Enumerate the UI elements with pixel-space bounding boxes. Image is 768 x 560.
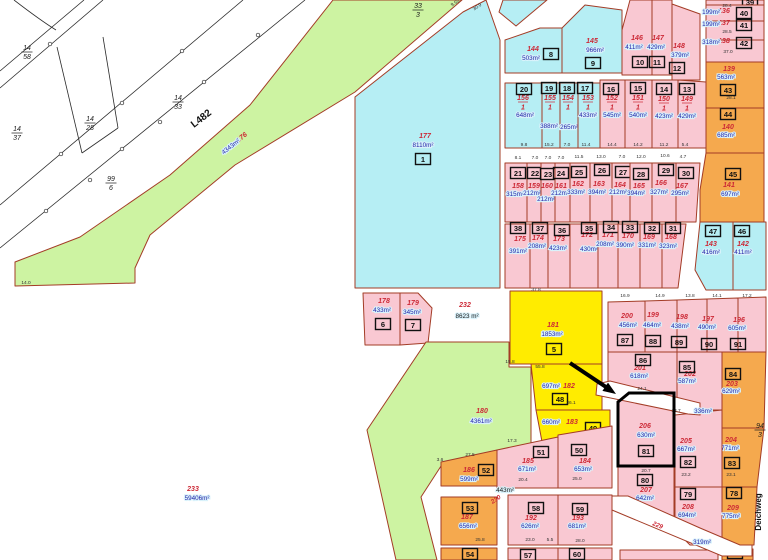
- svg-text:28.1: 28.1: [726, 95, 736, 101]
- svg-text:151: 151: [632, 95, 644, 102]
- svg-text:33: 33: [626, 223, 634, 232]
- svg-text:6: 6: [381, 320, 385, 329]
- svg-text:34: 34: [607, 223, 616, 232]
- parcel-fraction-14-58: 1458: [22, 45, 33, 61]
- parcel-152: 1521545m²16: [600, 80, 625, 148]
- parcel-209: 209775m²78: [722, 487, 757, 545]
- parcel-136: 136199m²40: [702, 5, 764, 21]
- svg-text:15.8: 15.8: [505, 359, 515, 365]
- svg-text:7.0: 7.0: [532, 155, 539, 161]
- svg-text:653m²: 653m²: [574, 466, 592, 473]
- svg-text:13: 13: [683, 85, 691, 94]
- svg-text:13.0: 13.0: [596, 154, 606, 160]
- svg-text:28.4: 28.4: [722, 3, 732, 9]
- svg-text:33: 33: [174, 104, 182, 111]
- svg-text:16: 16: [607, 85, 615, 94]
- svg-text:25: 25: [575, 168, 583, 177]
- parcel-169: 169331m²32: [638, 223, 662, 289]
- svg-text:192: 192: [525, 515, 537, 522]
- survey-point-icon: [256, 33, 260, 37]
- svg-text:456m²: 456m²: [619, 322, 637, 329]
- boundary-line: [0, 0, 84, 71]
- svg-text:411m²: 411m²: [734, 249, 751, 256]
- svg-text:35: 35: [585, 224, 593, 233]
- parcel-165: 165394m²28: [627, 163, 652, 222]
- svg-text:5.4: 5.4: [682, 142, 689, 148]
- svg-text:206: 206: [638, 423, 651, 430]
- svg-text:14.2: 14.2: [633, 142, 643, 148]
- survey-point-icon: [88, 178, 92, 182]
- svg-text:30: 30: [682, 169, 690, 178]
- svg-text:8.1: 8.1: [515, 155, 522, 161]
- svg-text:158: 158: [512, 183, 524, 190]
- parcel-187: 187656m²53: [441, 497, 497, 545]
- svg-text:379m²: 379m²: [671, 52, 689, 59]
- svg-text:80: 80: [641, 476, 649, 485]
- svg-text:3.6: 3.6: [437, 457, 444, 463]
- parcel-171: 171208m²34: [596, 222, 618, 289]
- svg-text:1: 1: [421, 155, 425, 164]
- svg-text:7.0: 7.0: [545, 155, 552, 161]
- svg-text:697m²: 697m²: [721, 191, 739, 198]
- parcel-139: 139563m²43: [706, 62, 764, 108]
- svg-text:23.1: 23.1: [726, 472, 736, 478]
- svg-text:233: 233: [186, 486, 199, 493]
- svg-text:143: 143: [705, 241, 717, 248]
- svg-text:429m²: 429m²: [647, 44, 665, 51]
- svg-text:59406m²: 59406m²: [185, 495, 210, 502]
- survey-point-icon: [120, 101, 124, 105]
- svg-text:333m²: 333m²: [567, 189, 585, 196]
- svg-text:21: 21: [514, 169, 522, 178]
- svg-text:184: 184: [579, 458, 591, 465]
- svg-text:1: 1: [662, 106, 666, 113]
- svg-text:187: 187: [461, 514, 474, 521]
- svg-text:144: 144: [527, 46, 539, 53]
- parcel-173: 173423m²36: [548, 224, 570, 288]
- svg-text:8110m²: 8110m²: [413, 142, 434, 149]
- svg-text:36: 36: [558, 226, 566, 235]
- boundary-curve: [14, 0, 56, 30]
- svg-text:L482: L482: [189, 107, 214, 130]
- svg-text:11.5: 11.5: [575, 154, 584, 160]
- svg-text:85: 85: [683, 363, 691, 372]
- svg-text:7.0: 7.0: [619, 154, 626, 160]
- svg-text:53: 53: [466, 504, 474, 513]
- svg-text:626m²: 626m²: [521, 523, 539, 530]
- svg-text:Deichweg: Deichweg: [754, 493, 763, 530]
- svg-text:265m²: 265m²: [560, 124, 578, 131]
- svg-text:55.8: 55.8: [535, 364, 545, 370]
- parcel-193: 193681m²59: [558, 495, 612, 545]
- svg-text:198: 198: [676, 314, 688, 321]
- parcel-143: 143416m²47: [695, 222, 733, 290]
- svg-text:137: 137: [718, 20, 731, 27]
- svg-text:149: 149: [681, 96, 693, 103]
- svg-text:29: 29: [662, 166, 670, 175]
- svg-text:336m²: 336m²: [694, 408, 712, 415]
- svg-text:37: 37: [13, 135, 22, 142]
- svg-text:11: 11: [653, 58, 661, 67]
- svg-text:416m²: 416m²: [702, 249, 720, 256]
- svg-text:1: 1: [636, 105, 640, 112]
- svg-text:163: 163: [593, 181, 605, 188]
- svg-text:587m²: 587m²: [678, 378, 696, 385]
- svg-text:168: 168: [665, 234, 677, 241]
- svg-text:52: 52: [482, 466, 490, 475]
- svg-text:629m²: 629m²: [722, 388, 740, 395]
- svg-text:37.8: 37.8: [531, 287, 541, 293]
- svg-text:394m²: 394m²: [627, 190, 645, 197]
- svg-text:14: 14: [174, 95, 182, 102]
- svg-text:181: 181: [547, 322, 559, 329]
- svg-text:1853m²: 1853m²: [541, 331, 562, 338]
- svg-text:23: 23: [544, 170, 552, 179]
- svg-text:83: 83: [728, 459, 736, 468]
- svg-text:48: 48: [556, 395, 564, 404]
- svg-text:656m²: 656m²: [459, 523, 477, 530]
- svg-text:14: 14: [13, 126, 21, 133]
- svg-text:14.0: 14.0: [21, 280, 31, 286]
- svg-text:23.2: 23.2: [681, 472, 691, 478]
- svg-text:37.0: 37.0: [723, 49, 733, 55]
- svg-text:139: 139: [723, 66, 735, 73]
- svg-text:1: 1: [566, 105, 570, 112]
- svg-text:54: 54: [466, 550, 475, 559]
- boundary-line: [103, 37, 118, 128]
- svg-text:25.8: 25.8: [475, 537, 485, 543]
- svg-text:173: 173: [553, 236, 565, 243]
- svg-text:46: 46: [738, 227, 746, 236]
- svg-text:58: 58: [23, 54, 31, 61]
- svg-text:212m²: 212m²: [537, 196, 555, 203]
- svg-text:196: 196: [733, 317, 745, 324]
- svg-text:327m²: 327m²: [650, 189, 668, 196]
- svg-text:685m²: 685m²: [717, 132, 735, 139]
- parcel: [620, 550, 718, 560]
- svg-text:6: 6: [109, 185, 113, 192]
- parcel-fraction-14-28: 1428: [85, 116, 96, 132]
- svg-text:183: 183: [566, 419, 578, 426]
- svg-text:433m²: 433m²: [373, 307, 391, 314]
- svg-text:45: 45: [729, 170, 737, 179]
- svg-text:174: 174: [532, 235, 544, 242]
- parcel-154: 1541265m²18: [560, 83, 579, 149]
- svg-text:4361m²: 4361m²: [470, 418, 491, 425]
- svg-text:20: 20: [520, 85, 528, 94]
- svg-text:8623 m²: 8623 m²: [455, 313, 478, 320]
- svg-text:4.7: 4.7: [680, 154, 687, 160]
- svg-text:47: 47: [709, 227, 717, 236]
- svg-text:671m²: 671m²: [518, 466, 536, 473]
- svg-text:177: 177: [419, 133, 432, 140]
- svg-text:411m²: 411m²: [625, 44, 642, 51]
- svg-text:648m²: 648m²: [516, 112, 534, 119]
- parcel-168: 168323m²31: [659, 223, 686, 289]
- svg-text:775m²: 775m²: [722, 513, 740, 520]
- parcel-156: 1561648m²20: [505, 83, 542, 148]
- svg-text:145: 145: [586, 38, 598, 45]
- svg-text:81: 81: [642, 447, 650, 456]
- svg-text:1: 1: [521, 105, 525, 112]
- svg-text:24.1: 24.1: [637, 386, 647, 392]
- svg-text:7.0: 7.0: [558, 155, 565, 161]
- svg-text:160: 160: [541, 183, 553, 190]
- svg-text:14: 14: [86, 116, 94, 123]
- svg-text:10.6: 10.6: [660, 153, 670, 159]
- svg-text:14: 14: [23, 45, 31, 52]
- svg-text:23.0: 23.0: [525, 537, 535, 543]
- svg-text:22: 22: [531, 169, 539, 178]
- svg-text:197: 197: [702, 316, 715, 323]
- svg-text:17.2: 17.2: [742, 293, 752, 299]
- svg-text:20.7: 20.7: [641, 468, 651, 474]
- survey-point-icon: [202, 80, 206, 84]
- survey-point-icon: [48, 42, 52, 46]
- svg-text:1: 1: [548, 105, 552, 112]
- svg-text:26: 26: [598, 166, 606, 175]
- svg-text:390m²: 390m²: [616, 242, 634, 249]
- svg-text:180: 180: [476, 408, 488, 415]
- svg-text:140: 140: [722, 124, 734, 131]
- svg-text:12.0: 12.0: [636, 154, 646, 160]
- svg-text:391m²: 391m²: [509, 248, 527, 255]
- svg-text:295m²: 295m²: [671, 190, 689, 197]
- svg-text:540m²: 540m²: [629, 112, 647, 119]
- parcel-144: 144503m²8: [505, 28, 562, 73]
- parcel-203: 203629m²84: [722, 352, 766, 428]
- svg-text:59: 59: [576, 505, 584, 514]
- svg-text:9.8: 9.8: [521, 142, 528, 148]
- parcel-138: 138318m²42: [702, 38, 764, 63]
- svg-text:169: 169: [643, 234, 655, 241]
- parcel: [499, 0, 547, 26]
- svg-text:667m²: 667m²: [677, 446, 695, 453]
- svg-text:186: 186: [463, 467, 475, 474]
- svg-text:16.9: 16.9: [620, 293, 630, 299]
- svg-text:20.4: 20.4: [518, 477, 528, 483]
- svg-text:490m²: 490m²: [698, 324, 716, 331]
- parcel-141: 141697m²45: [700, 153, 764, 222]
- svg-text:193: 193: [572, 515, 584, 522]
- svg-text:605m²: 605m²: [728, 325, 746, 332]
- svg-text:28.5: 28.5: [722, 29, 732, 35]
- parcel-fraction-14-37: 1437: [12, 126, 23, 142]
- svg-text:204: 204: [724, 437, 737, 444]
- svg-text:37: 37: [536, 224, 544, 233]
- svg-text:429m²: 429m²: [678, 113, 696, 120]
- svg-text:86: 86: [639, 356, 647, 365]
- svg-text:697m²: 697m²: [542, 383, 560, 390]
- svg-text:165: 165: [633, 183, 645, 190]
- svg-text:212m²: 212m²: [609, 189, 627, 196]
- svg-text:94: 94: [756, 423, 764, 430]
- svg-text:1: 1: [586, 105, 590, 112]
- svg-text:82: 82: [684, 458, 692, 467]
- parcel-150: 1501423m²14: [652, 80, 678, 148]
- svg-text:319m²: 319m²: [693, 539, 711, 546]
- svg-text:5.5: 5.5: [547, 537, 554, 543]
- parcel-153: 1531433m²17: [578, 83, 601, 149]
- svg-text:771m²: 771m²: [721, 445, 739, 452]
- parcel-148: 148379m²12: [670, 4, 701, 80]
- svg-text:630m²: 630m²: [637, 432, 655, 439]
- svg-text:433m²: 433m²: [579, 112, 597, 119]
- svg-text:153: 153: [582, 95, 594, 102]
- svg-text:179: 179: [407, 300, 419, 307]
- parcel-145: 145966m²9: [562, 5, 622, 73]
- svg-text:345m²: 345m²: [403, 309, 421, 316]
- svg-text:232: 232: [458, 302, 471, 309]
- parcel-142: 142411m²46: [733, 222, 766, 290]
- parcel-232: 2328623 m²: [455, 302, 478, 320]
- svg-text:57: 57: [524, 551, 532, 560]
- survey-point-icon: [120, 147, 124, 151]
- svg-text:17: 17: [581, 84, 589, 93]
- svg-text:11.2: 11.2: [660, 142, 669, 148]
- parcel-box-60: 60: [558, 548, 612, 560]
- svg-text:51: 51: [537, 448, 545, 457]
- svg-text:58: 58: [532, 504, 540, 513]
- svg-text:155: 155: [544, 95, 556, 102]
- svg-text:10: 10: [636, 58, 644, 67]
- svg-text:599m²: 599m²: [460, 476, 478, 483]
- svg-text:545m²: 545m²: [603, 112, 621, 119]
- svg-text:5: 5: [552, 345, 556, 354]
- svg-text:159: 159: [528, 183, 540, 190]
- svg-text:15: 15: [634, 84, 642, 93]
- svg-text:28: 28: [637, 170, 645, 179]
- svg-text:443m²: 443m²: [496, 487, 514, 494]
- parcel-170: 170390m²33: [616, 222, 640, 289]
- parcel-fraction-99-6: 996: [106, 176, 117, 192]
- svg-text:694m²: 694m²: [678, 512, 696, 519]
- svg-text:178: 178: [378, 298, 390, 305]
- cadastral-map-page: 1764343m²1778110m²1144503m²8145966m²9146…: [0, 0, 768, 560]
- svg-text:148: 148: [673, 43, 685, 50]
- svg-text:318m²: 318m²: [702, 39, 720, 46]
- svg-text:394m²: 394m²: [588, 189, 606, 196]
- svg-text:8: 8: [549, 50, 553, 59]
- svg-text:141: 141: [723, 182, 735, 189]
- svg-text:17.3: 17.3: [507, 438, 517, 444]
- svg-text:33: 33: [414, 3, 422, 10]
- svg-text:167: 167: [676, 183, 689, 190]
- svg-text:99: 99: [107, 176, 115, 183]
- svg-text:199m²: 199m²: [702, 21, 720, 28]
- svg-text:36.1: 36.1: [566, 400, 576, 406]
- svg-text:27: 27: [619, 168, 627, 177]
- svg-text:44: 44: [724, 110, 733, 119]
- svg-text:423m²: 423m²: [655, 113, 673, 120]
- svg-text:146: 146: [631, 35, 643, 42]
- parcel-137: 137199m²41: [702, 20, 764, 41]
- svg-text:28: 28: [85, 125, 94, 132]
- svg-text:27.5: 27.5: [465, 452, 475, 458]
- svg-text:199m²: 199m²: [702, 9, 720, 16]
- parcel-146: 146411m²10: [622, 0, 652, 75]
- svg-text:11.4: 11.4: [582, 142, 591, 148]
- svg-text:19: 19: [545, 84, 553, 93]
- svg-text:185: 185: [522, 458, 534, 465]
- parcel-179: 179345m²7: [400, 293, 432, 345]
- cadastral-map: 1764343m²1778110m²1144503m²8145966m²9146…: [0, 0, 768, 560]
- svg-text:14.9: 14.9: [655, 293, 665, 299]
- survey-point-icon: [59, 152, 63, 156]
- svg-text:207: 207: [639, 487, 653, 494]
- parcel-box-57: 57: [508, 548, 558, 560]
- svg-text:423m²: 423m²: [549, 245, 567, 252]
- svg-text:40: 40: [740, 9, 748, 18]
- svg-text:9: 9: [591, 59, 595, 68]
- svg-text:3: 3: [416, 12, 420, 19]
- svg-text:660m²: 660m²: [542, 419, 560, 426]
- svg-text:175: 175: [514, 236, 526, 243]
- svg-text:7.0: 7.0: [564, 142, 571, 148]
- svg-text:15.2: 15.2: [544, 142, 554, 148]
- svg-text:87: 87: [621, 336, 629, 345]
- survey-point-icon: [180, 49, 184, 53]
- svg-text:209: 209: [726, 505, 739, 512]
- svg-text:12: 12: [673, 64, 681, 73]
- svg-text:388m²: 388m²: [540, 123, 558, 130]
- svg-text:503m²: 503m²: [522, 55, 540, 62]
- svg-text:1: 1: [610, 105, 614, 112]
- svg-text:199: 199: [647, 312, 659, 319]
- svg-text:25.0: 25.0: [572, 476, 582, 482]
- svg-text:164: 164: [614, 182, 626, 189]
- svg-text:43: 43: [724, 86, 732, 95]
- svg-text:18: 18: [563, 84, 571, 93]
- svg-text:42: 42: [740, 39, 748, 48]
- svg-text:50: 50: [575, 446, 583, 455]
- svg-text:28.0: 28.0: [575, 538, 585, 544]
- svg-text:208m²: 208m²: [528, 243, 546, 250]
- svg-text:79: 79: [684, 490, 692, 499]
- svg-text:14.4: 14.4: [607, 142, 617, 148]
- svg-text:966m²: 966m²: [586, 47, 604, 54]
- svg-text:205: 205: [679, 438, 692, 445]
- svg-text:323m²: 323m²: [659, 243, 677, 250]
- svg-text:14: 14: [660, 85, 669, 94]
- svg-text:182: 182: [563, 383, 575, 390]
- svg-text:147: 147: [652, 35, 665, 42]
- svg-text:161: 161: [555, 183, 567, 190]
- svg-text:208: 208: [681, 504, 694, 511]
- svg-text:438m²: 438m²: [671, 323, 689, 330]
- parcel-172: 172430m²35: [570, 223, 598, 289]
- parcel-151: 1511540m²15: [625, 80, 652, 148]
- svg-text:618m²: 618m²: [630, 373, 648, 380]
- parcel-140: 140685m²44: [706, 108, 764, 153]
- svg-text:3: 3: [758, 432, 762, 439]
- svg-text:89: 89: [675, 338, 683, 347]
- svg-text:13.8: 13.8: [685, 293, 695, 299]
- svg-text:681m²: 681m²: [568, 523, 586, 530]
- svg-text:200: 200: [620, 313, 633, 320]
- svg-text:156: 156: [517, 95, 529, 102]
- svg-text:331m²: 331m²: [638, 242, 656, 249]
- svg-text:32: 32: [648, 224, 656, 233]
- svg-text:78: 78: [730, 489, 738, 498]
- svg-text:91: 91: [734, 340, 742, 349]
- svg-text:208m²: 208m²: [596, 241, 614, 248]
- parcel-181: 1811853m²5: [510, 291, 602, 364]
- svg-text:14.1: 14.1: [712, 293, 722, 299]
- parcel-184: 184653m²50: [558, 426, 612, 488]
- parcel-box-54: 54: [441, 548, 497, 560]
- parcel-174: 174208m²37: [528, 223, 548, 289]
